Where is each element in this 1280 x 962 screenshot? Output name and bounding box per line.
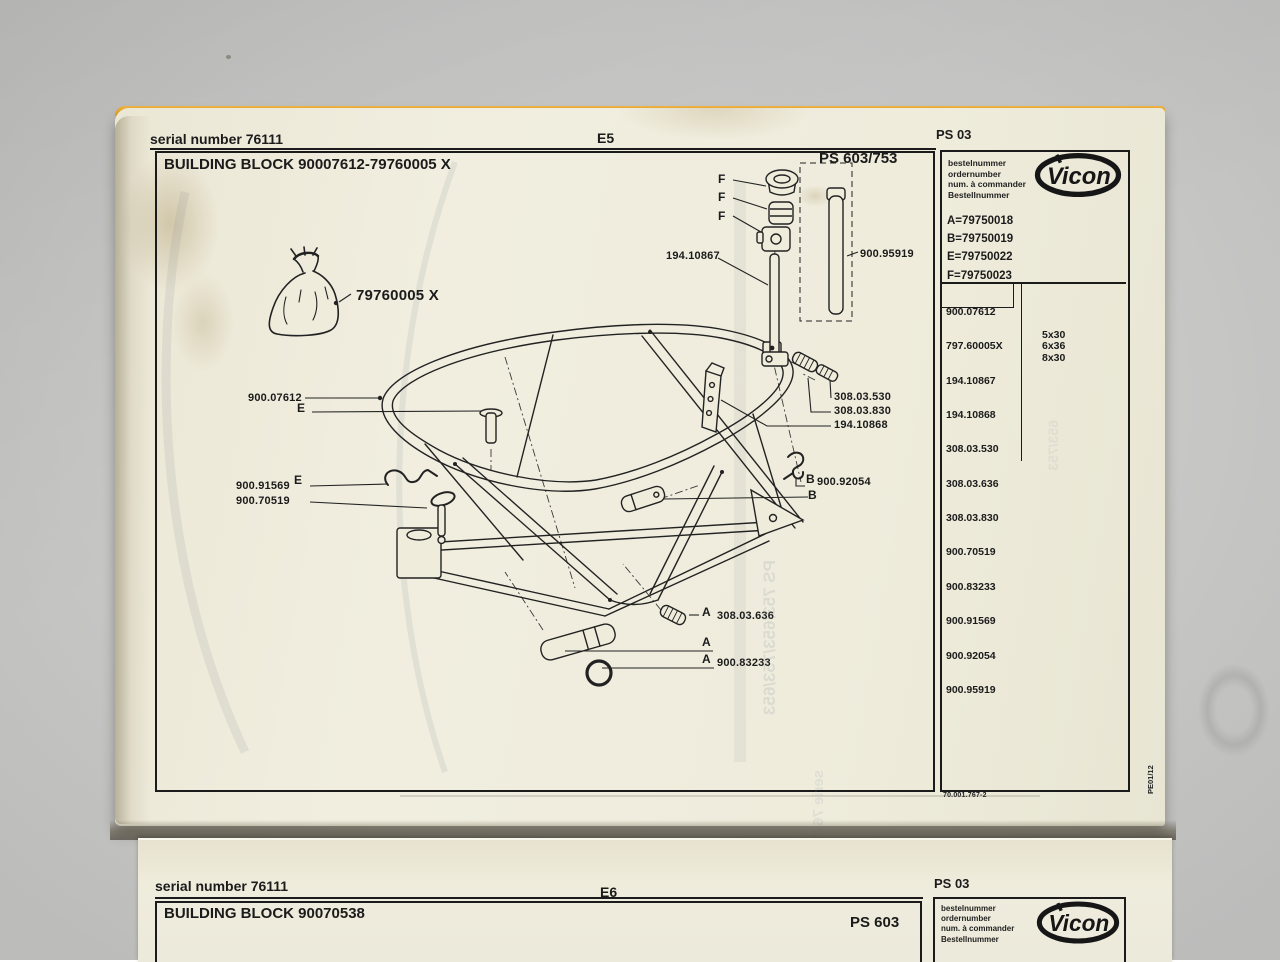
part-row: 194.10868 bbox=[946, 410, 1003, 421]
bolt-size: 8x30 bbox=[1042, 353, 1065, 364]
order-label-nl-p2: bestelnummer bbox=[941, 904, 1014, 914]
vicon-logo: Vicon bbox=[1034, 152, 1122, 198]
page-left-curl bbox=[115, 116, 151, 824]
highlight-part-box bbox=[940, 283, 1014, 308]
clamp bbox=[762, 227, 790, 251]
callout-a2: A bbox=[702, 635, 711, 649]
part-row: 900.95919 bbox=[946, 685, 1003, 696]
spare-rod bbox=[829, 196, 843, 314]
adjuster-rod bbox=[770, 254, 779, 358]
model-code-p2: PS 603 bbox=[850, 914, 899, 931]
callout-a3: A bbox=[702, 652, 711, 666]
part-row: 308.03.636 bbox=[946, 479, 1003, 490]
order-label-en: ordernumber bbox=[948, 169, 1026, 180]
adjuster-parts bbox=[757, 170, 845, 366]
callout-bag: 79760005 X bbox=[356, 287, 439, 304]
callout-19410867: 194.10867 bbox=[666, 250, 720, 262]
part-row: 900.91569 bbox=[946, 616, 1003, 627]
part-row: 308.03.830 bbox=[946, 513, 1003, 524]
callout-e1: E bbox=[297, 401, 305, 415]
callout-30803530: 308.03.530 bbox=[834, 391, 891, 403]
callout-b2: B bbox=[808, 488, 817, 502]
serial-number: serial number 76111 bbox=[150, 131, 283, 147]
spring-pin-530 bbox=[815, 363, 839, 382]
print-code: PE01/12 bbox=[1146, 746, 1155, 794]
callout-90070519: 900.70519 bbox=[236, 495, 290, 507]
showthrough-arcs bbox=[166, 162, 740, 772]
order-label-fr: num. à commander bbox=[948, 179, 1026, 190]
sleeve bbox=[769, 202, 793, 224]
locking-pin bbox=[539, 622, 618, 662]
callout-19410868: 194.10868 bbox=[834, 419, 888, 431]
parts-list: 900.07612 797.60005X 194.10867 194.10868… bbox=[946, 284, 1003, 719]
showthrough-text-3: 653/753 bbox=[1045, 420, 1061, 471]
bolt-sizes: 5x30 6x36 8x30 bbox=[1042, 330, 1065, 364]
part-row: 308.03.530 bbox=[946, 444, 1003, 455]
pin-ring-handle bbox=[587, 661, 611, 685]
bolt-size: 6x36 bbox=[1042, 341, 1065, 352]
spacer-tube bbox=[620, 485, 667, 514]
part-row: 900.07612 bbox=[946, 307, 1003, 318]
callout-a1: A bbox=[702, 605, 711, 619]
callout-90091569: 900.91569 bbox=[236, 480, 290, 492]
letter-code-e: E=79750022 bbox=[947, 248, 1013, 266]
sheet-code-p2: E6 bbox=[600, 884, 617, 900]
showthrough-logo-ghost bbox=[1188, 650, 1280, 770]
exploded-diagram bbox=[155, 152, 935, 790]
photo-backdrop: serial number 76111 E5 BUILDING BLOCK 90… bbox=[0, 0, 1280, 960]
callout-90092054: 900.92054 bbox=[817, 476, 871, 488]
letter-code-a: A=79750018 bbox=[947, 212, 1013, 230]
vicon-logo-text-p2: Vicon bbox=[1048, 910, 1109, 936]
showthrough-text-1: PS 753/653/753/653 bbox=[760, 560, 780, 715]
callout-f1: F bbox=[718, 172, 726, 186]
sheet-code: E5 bbox=[597, 130, 614, 146]
order-label-de-p2: Bestellnummer bbox=[941, 935, 1014, 945]
callout-b1: B bbox=[806, 472, 815, 486]
order-label-fr-p2: num. à commander bbox=[941, 924, 1014, 934]
page-fold-shadow bbox=[110, 820, 1176, 840]
part-row: 194.10867 bbox=[946, 376, 1003, 387]
part-row: 797.60005X bbox=[946, 341, 1003, 352]
backdrop-speck bbox=[226, 55, 231, 59]
spring-pin-636 bbox=[659, 604, 688, 626]
vicon-logo-text: Vicon bbox=[1047, 163, 1111, 190]
order-number-labels: bestelnummer ordernumber num. à commande… bbox=[948, 158, 1026, 200]
size-column-divider bbox=[1021, 283, 1022, 461]
order-label-de: Bestellnummer bbox=[948, 190, 1026, 201]
detail-box bbox=[800, 163, 852, 321]
r-clip-right bbox=[784, 453, 803, 479]
vicon-logo-p2: Vicon bbox=[1036, 900, 1120, 945]
panel-code: PS 03 bbox=[936, 127, 971, 142]
letter-code-table: A=79750018 B=79750019 E=79750022 F=79750… bbox=[947, 212, 1013, 285]
part-row: 900.92054 bbox=[946, 651, 1003, 662]
part-row: 900.70519 bbox=[946, 547, 1003, 558]
order-label-nl: bestelnummer bbox=[948, 158, 1026, 169]
callout-90007612: 900.07612 bbox=[248, 392, 302, 404]
serial-underline-p2 bbox=[155, 897, 923, 899]
order-label-en-p2: ordernumber bbox=[941, 914, 1014, 924]
spring-pin-830 bbox=[791, 351, 820, 374]
r-clip-left bbox=[385, 470, 437, 485]
order-number-labels-p2: bestelnummer ordernumber num. à commande… bbox=[941, 904, 1014, 945]
callout-90095919: 900.95919 bbox=[860, 248, 914, 260]
callout-e2: E bbox=[294, 473, 302, 487]
parts-bag bbox=[269, 247, 338, 336]
callout-30803830: 308.03.830 bbox=[834, 405, 891, 417]
part-row: 900.83233 bbox=[946, 582, 1003, 593]
callout-f2: F bbox=[718, 190, 726, 204]
page-title-p2: BUILDING BLOCK 90070538 bbox=[164, 905, 365, 922]
serial-number-p2: serial number 76111 bbox=[155, 878, 288, 894]
showthrough-line bbox=[400, 795, 1040, 797]
letter-code-b: B=79750019 bbox=[947, 230, 1013, 248]
callout-f3: F bbox=[718, 209, 726, 223]
panel-code-p2: PS 03 bbox=[934, 876, 969, 891]
